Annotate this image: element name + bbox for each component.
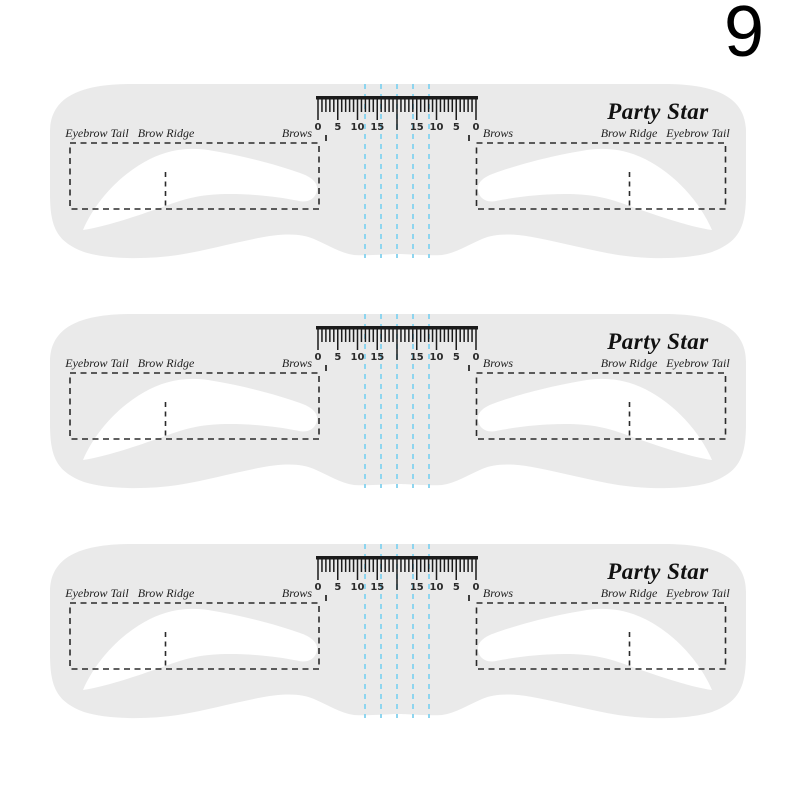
ruler-number: 15: [370, 582, 384, 593]
ruler-number: 10: [430, 582, 444, 593]
label-eyebrow-tail-left: Eyebrow Tail: [64, 356, 129, 370]
ruler-number: 15: [370, 122, 384, 133]
ruler-number: 0: [473, 352, 480, 363]
label-brows-right: Brows: [483, 586, 514, 600]
ruler-number: 0: [473, 582, 480, 593]
label-eyebrow-tail-right: Eyebrow Tail: [665, 356, 730, 370]
eyebrow-stencil-image: 0 5 10 15 15 10 5 0 Eyebrow Tail Brow Ri…: [50, 544, 750, 724]
product-photo-page: { "page": { "background": "#ffffff", "va…: [0, 0, 800, 800]
label-brow-ridge-left: Brow Ridge: [138, 126, 195, 140]
ruler-number: 10: [430, 122, 444, 133]
eyebrow-stencil-image: 0 5 10 15 15 10 5 0 Eyebrow Tail Brow Ri…: [50, 84, 750, 264]
ruler-number: 5: [453, 122, 460, 133]
ruler-number: 15: [410, 122, 424, 133]
ruler-number: 10: [430, 352, 444, 363]
label-eyebrow-tail-left: Eyebrow Tail: [64, 126, 129, 140]
brand-text: Party Star: [606, 559, 709, 584]
ruler-number: 5: [334, 352, 341, 363]
brand-text: Party Star: [606, 329, 709, 354]
label-brows-left: Brows: [282, 126, 313, 140]
label-brow-ridge-left: Brow Ridge: [138, 586, 195, 600]
ruler-number: 5: [453, 352, 460, 363]
label-brow-ridge-right: Brow Ridge: [601, 126, 658, 140]
ruler-number: 0: [473, 122, 480, 133]
ruler-bar: [316, 96, 478, 100]
ruler-number: 10: [351, 122, 365, 133]
ruler-number: 0: [315, 122, 322, 133]
eyebrow-stencil-image: 0 5 10 15 15 10 5 0 Eyebrow Tail Brow Ri…: [50, 314, 750, 494]
ruler-number: 15: [370, 352, 384, 363]
ruler-number: 15: [410, 582, 424, 593]
ruler-bar: [316, 556, 478, 560]
stencil-1: 0 5 10 15 15 10 5 0 Eyebrow Tail Brow Ri…: [50, 84, 750, 264]
brand-text: Party Star: [606, 99, 709, 124]
ruler-number: 5: [334, 122, 341, 133]
stencil-2: 0 5 10 15 15 10 5 0 Eyebrow Tail Brow Ri…: [50, 314, 750, 494]
stencil-3: 0 5 10 15 15 10 5 0 Eyebrow Tail Brow Ri…: [50, 544, 750, 724]
label-brows-left: Brows: [282, 356, 313, 370]
label-brow-ridge-right: Brow Ridge: [601, 586, 658, 600]
ruler-number: 15: [410, 352, 424, 363]
label-eyebrow-tail-right: Eyebrow Tail: [665, 126, 730, 140]
ruler-number: 10: [351, 582, 365, 593]
ruler-number: 0: [315, 582, 322, 593]
label-brows-right: Brows: [483, 356, 514, 370]
label-eyebrow-tail-right: Eyebrow Tail: [665, 586, 730, 600]
ruler-number: 5: [334, 582, 341, 593]
ruler-number: 0: [315, 352, 322, 363]
variant-number: 9: [714, 0, 774, 68]
label-brow-ridge-left: Brow Ridge: [138, 356, 195, 370]
ruler-number: 5: [453, 582, 460, 593]
ruler-number: 10: [351, 352, 365, 363]
ruler-bar: [316, 326, 478, 330]
label-brows-right: Brows: [483, 126, 514, 140]
label-eyebrow-tail-left: Eyebrow Tail: [64, 586, 129, 600]
label-brow-ridge-right: Brow Ridge: [601, 356, 658, 370]
label-brows-left: Brows: [282, 586, 313, 600]
